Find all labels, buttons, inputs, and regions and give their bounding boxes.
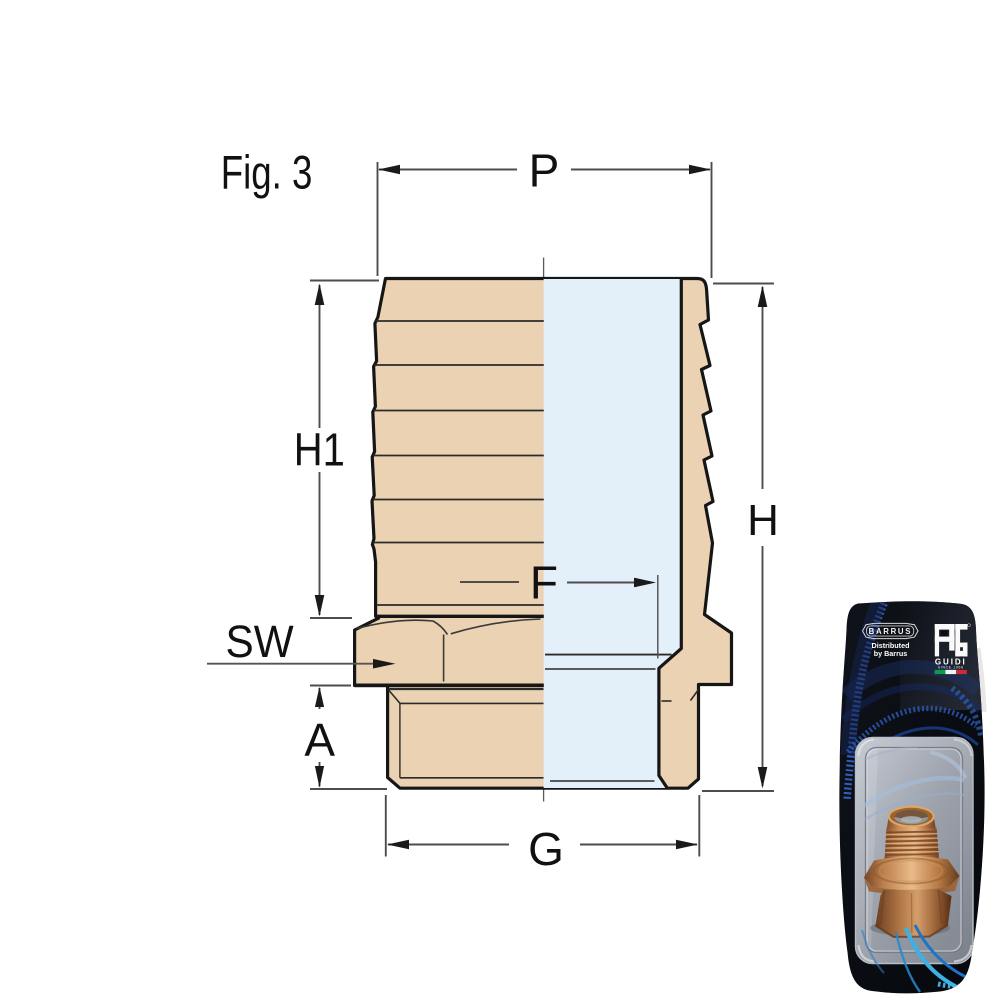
svg-text:H: H: [747, 496, 779, 545]
svg-text:BARRUS: BARRUS: [869, 627, 913, 636]
svg-text:G: G: [528, 823, 564, 875]
svg-text:F: F: [530, 557, 558, 609]
svg-text:H1: H1: [294, 425, 345, 476]
svg-text:by Barrus: by Barrus: [874, 649, 908, 658]
svg-text:SINCE 1968: SINCE 1968: [938, 665, 964, 669]
svg-text:P: P: [529, 145, 560, 197]
svg-text:Fig. 3: Fig. 3: [221, 146, 313, 198]
svg-text:SW: SW: [226, 617, 295, 667]
svg-text:A: A: [304, 714, 335, 766]
